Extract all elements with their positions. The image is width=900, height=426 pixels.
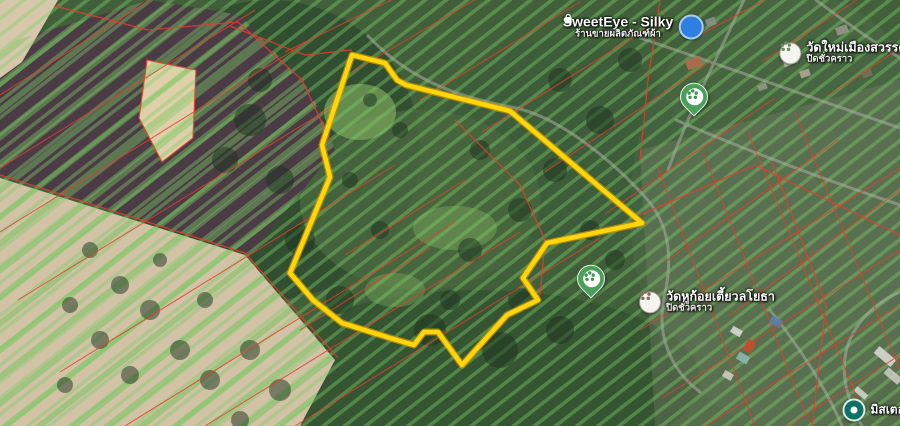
poi-mister-store[interactable]: มิสเตอร์จัก bbox=[842, 399, 900, 422]
flower-icon bbox=[583, 270, 596, 283]
flower-icon bbox=[686, 88, 699, 101]
satellite-map-canvas[interactable]: SweetEye - Silky ร้านขายผลิตภัณฑ์ผ้า วัด… bbox=[0, 0, 900, 426]
store-dot-icon bbox=[850, 407, 857, 414]
shopping-bag-icon bbox=[563, 13, 574, 24]
map-imagery bbox=[0, 0, 900, 426]
poi-sweeteye-subtitle: ร้านขายผลิตภัณฑ์ผ้า bbox=[563, 30, 674, 41]
flower-icon bbox=[779, 40, 792, 53]
poi-wat-mai-status: ปิดชั่วคราว bbox=[806, 55, 900, 66]
temple-pin-icon[interactable] bbox=[779, 42, 801, 64]
temple-pin-icon[interactable] bbox=[639, 291, 661, 313]
poi-sweeteye-silky[interactable]: SweetEye - Silky ร้านขายผลิตภัณฑ์ผ้า bbox=[563, 13, 704, 40]
shop-pin-icon[interactable] bbox=[678, 14, 703, 39]
poi-wat-south[interactable]: วัดหูก้อยเตี้ยวลโยธา ปิดชั่วคราว bbox=[639, 289, 775, 314]
poi-mister-title: มิสเตอร์จัก bbox=[870, 403, 900, 417]
poi-wat-south-status: ปิดชั่วคราว bbox=[666, 304, 775, 315]
poi-sweeteye-title: SweetEye - Silky bbox=[563, 13, 674, 29]
flower-icon bbox=[639, 289, 652, 302]
poi-wat-mai-mueang-sawan[interactable]: วัดใหม่เมืองสวรรค์ ปิดชั่วคราว bbox=[779, 40, 900, 65]
store-pin-icon[interactable] bbox=[842, 399, 865, 422]
